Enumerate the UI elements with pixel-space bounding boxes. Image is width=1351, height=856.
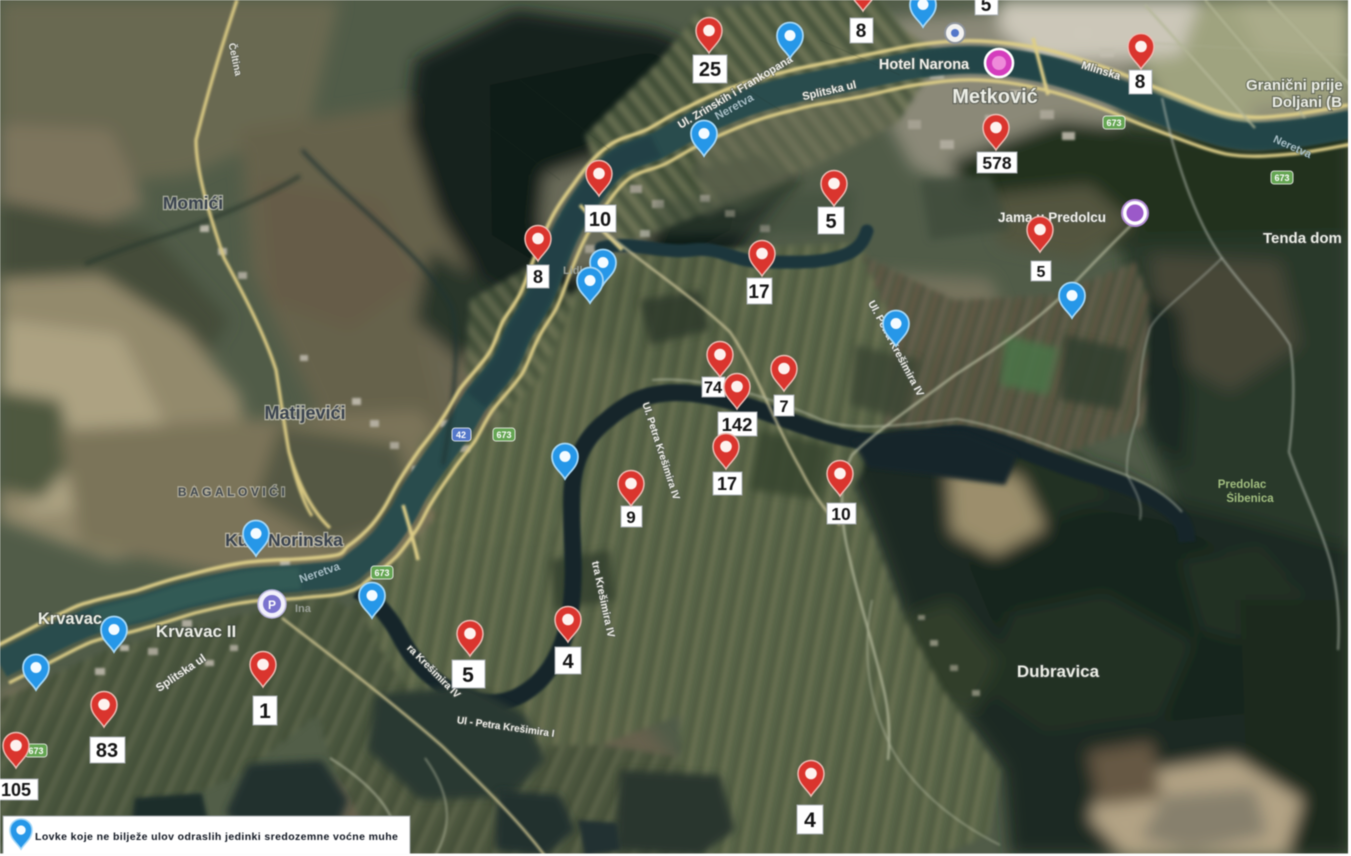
svg-text:5: 5 <box>825 211 836 233</box>
svg-text:Predolac: Predolac <box>1218 479 1267 491</box>
svg-text:Dubravica: Dubravica <box>1017 662 1100 681</box>
svg-text:Momići: Momići <box>163 193 223 213</box>
svg-text:673: 673 <box>1106 118 1121 128</box>
svg-text:4: 4 <box>804 809 816 832</box>
svg-text:5: 5 <box>981 0 992 16</box>
svg-text:83: 83 <box>96 740 118 762</box>
svg-text:10: 10 <box>589 209 611 231</box>
svg-text:8: 8 <box>1135 72 1146 93</box>
svg-text:8: 8 <box>533 267 543 287</box>
svg-text:105: 105 <box>1 780 31 800</box>
svg-text:Doljani (B: Doljani (B <box>1272 94 1342 111</box>
svg-text:Krvavac: Krvavac <box>38 610 102 628</box>
svg-text:673: 673 <box>496 430 511 440</box>
svg-text:42: 42 <box>456 430 466 440</box>
svg-text:Metković: Metković <box>952 86 1038 108</box>
svg-text:8: 8 <box>856 21 867 42</box>
svg-text:Granični prije: Granični prije <box>1246 77 1343 94</box>
svg-text:10: 10 <box>831 504 851 524</box>
svg-text:5: 5 <box>1037 264 1046 281</box>
svg-text:17: 17 <box>748 282 769 303</box>
svg-text:BAGALOVIĆI: BAGALOVIĆI <box>178 484 288 499</box>
svg-text:673: 673 <box>28 746 43 756</box>
svg-text:7: 7 <box>779 398 788 416</box>
svg-text:74: 74 <box>704 379 723 397</box>
svg-text:Hotel Narona: Hotel Narona <box>879 57 970 73</box>
svg-text:Šibenica: Šibenica <box>1226 492 1274 505</box>
svg-text:4: 4 <box>562 651 574 673</box>
svg-text:9: 9 <box>626 508 635 527</box>
svg-text:673: 673 <box>1274 173 1289 183</box>
svg-text:Tenda dom: Tenda dom <box>1263 230 1342 247</box>
svg-text:Krvavac II: Krvavac II <box>156 622 236 641</box>
svg-text:578: 578 <box>982 153 1011 173</box>
svg-text:25: 25 <box>699 59 721 81</box>
svg-text:1: 1 <box>259 700 271 723</box>
svg-text:5: 5 <box>462 664 474 687</box>
svg-text:Ina: Ina <box>295 603 312 615</box>
svg-text:Matijevići: Matijevići <box>264 403 345 423</box>
svg-text:142: 142 <box>722 414 753 435</box>
svg-text:17: 17 <box>717 474 737 494</box>
svg-text:Lovke koje ne bilježe ulov odr: Lovke koje ne bilježe ulov odraslih jedi… <box>35 831 398 843</box>
svg-text:P: P <box>268 598 276 612</box>
svg-text:673: 673 <box>374 568 389 578</box>
